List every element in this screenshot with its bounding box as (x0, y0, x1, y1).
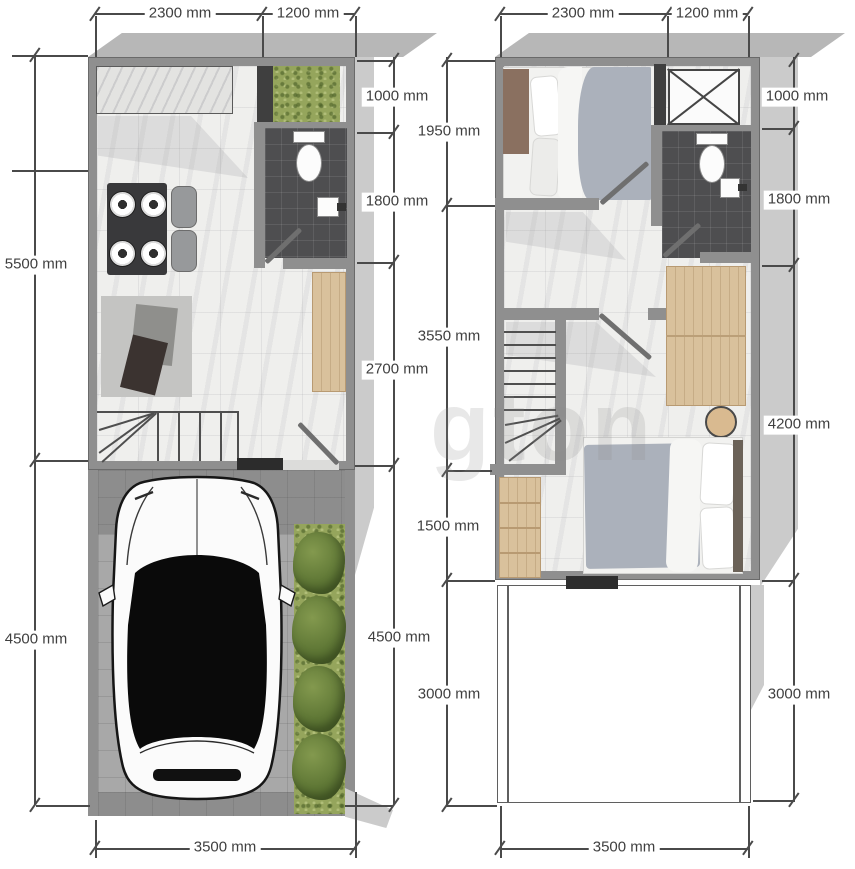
dim-label-plan1-width-a: 2300 mm (145, 5, 216, 24)
dim-ext (446, 60, 495, 62)
dim-ext (748, 16, 750, 57)
kitchen-counter (96, 66, 233, 114)
plate (140, 240, 167, 267)
outline-right-shadow (751, 585, 764, 710)
plan2-wall-top-3d-band (495, 33, 845, 57)
dim-line-left (34, 55, 36, 805)
dim-label-plan1-width-b: 1200 mm (273, 5, 344, 24)
dim-label-mid-2700: 2700 mm (362, 361, 433, 380)
dim-ext (762, 580, 793, 582)
sink1-faucet (337, 203, 346, 211)
toilet1-tank (293, 131, 325, 143)
entry-door-gap (257, 66, 273, 123)
stairs2-tread (504, 344, 556, 346)
wardrobe-divider (499, 502, 541, 504)
car-top-view (95, 473, 299, 803)
shaft-door-gap (654, 64, 666, 126)
dim-label-right-3000: 3000 mm (764, 686, 835, 705)
stairs1-right-edge (237, 411, 239, 461)
dim-ext (12, 55, 88, 57)
bedroom2-entry-wall (497, 308, 599, 320)
dim-label-plan2-width-b: 1200 mm (672, 5, 743, 24)
plate (109, 191, 136, 218)
carport-door-gap (283, 460, 339, 470)
carport-corner-shadow (345, 788, 393, 828)
dim-ext (12, 170, 88, 172)
desk-divider-line (666, 335, 746, 337)
dim-ext (446, 470, 492, 472)
bed2-headboard (733, 440, 743, 572)
outline-inner-line (507, 585, 509, 803)
dim-label-plan1-depth-a: 5500 mm (1, 256, 72, 275)
inner-court-grass (273, 66, 340, 123)
sink2 (720, 178, 740, 198)
carport-right-wall (345, 470, 355, 816)
dim-label-right-1000: 1000 mm (762, 88, 833, 107)
toilet1-bowl (296, 144, 322, 182)
stairs1-tread (220, 412, 222, 461)
dim-label-mid-4500: 4500 mm (364, 629, 435, 648)
dim-label-plan2-bottom: 3500 mm (589, 839, 660, 858)
stairs2-bottom-wall (490, 464, 566, 475)
dim-ext (500, 16, 502, 57)
bench-cabinet (312, 272, 346, 392)
toilet2-tank (696, 133, 728, 145)
dim-ext (357, 262, 393, 264)
dim-ext (446, 205, 495, 207)
stairs1-tread (157, 412, 159, 461)
stairs2-right-wall (555, 308, 566, 475)
shrub (292, 734, 346, 800)
dim-line-mid-a (393, 57, 395, 805)
stairs1-top-edge (97, 411, 237, 413)
bed2-sheet-fold (666, 438, 703, 572)
wardrobe-divider (499, 552, 541, 554)
dim-ext (762, 265, 793, 267)
bed1-duvet (578, 67, 651, 200)
dim-ext (357, 60, 393, 62)
dim-label-mid-1500: 1500 mm (413, 518, 484, 537)
sink1 (317, 197, 339, 217)
lower-level-outline (497, 585, 751, 803)
dim-ext (95, 16, 97, 57)
dim-ext (345, 805, 393, 807)
dim-label-mid-3000: 3000 mm (414, 686, 485, 705)
shrub (293, 666, 345, 732)
dim-label-plan1-bottom: 3500 mm (190, 839, 261, 858)
bed1-pillow (529, 137, 561, 197)
bathroom1-left-wall (254, 122, 265, 268)
shrub (293, 532, 345, 594)
dim-ext (36, 805, 90, 807)
dim-label-mid-3550: 3550 mm (414, 328, 485, 347)
dim-label-plan1-depth-b: 4500 mm (1, 631, 72, 650)
doormat (566, 576, 618, 589)
dim-ext (446, 805, 497, 807)
floor-plan-drawing: gton 2300 mm 1200 mm 2300 mm 1200 mm 550… (0, 0, 855, 869)
dim-label-right-4200: 4200 mm (764, 416, 835, 435)
stairs2-tread (504, 370, 556, 372)
bedroom1-partition-wall (495, 198, 599, 210)
stairs2-tread (504, 331, 556, 333)
plate (109, 240, 136, 267)
dim-ext (262, 16, 264, 57)
bathroom2-bottom-wall (700, 252, 751, 263)
dining-chair (171, 230, 197, 272)
dining-chair (171, 186, 197, 228)
dim-ext (762, 128, 793, 130)
dim-ext (355, 465, 393, 467)
outline-inner-line (739, 585, 741, 803)
dim-ext (500, 806, 502, 858)
sink2-faucet (738, 184, 747, 191)
bathroom1-bottom-wall (283, 258, 347, 269)
dim-ext (446, 580, 495, 582)
round-stool (705, 406, 737, 438)
dim-ext (355, 16, 357, 57)
bathroom2-left-wall (651, 125, 662, 226)
plan1-right-shadow (355, 57, 374, 575)
car-rear-band (153, 769, 241, 781)
wardrobe-divider (499, 527, 541, 529)
dim-label-mid-1950: 1950 mm (414, 123, 485, 142)
stairs1-tread (178, 412, 180, 461)
shrub (292, 596, 346, 664)
stairs2-tread (504, 383, 556, 385)
stairs1-tread (199, 412, 201, 461)
dim-ext (753, 800, 793, 802)
dim-label-mid-1800: 1800 mm (362, 193, 433, 212)
stairs2-tread (504, 409, 556, 411)
dim-ext (95, 820, 97, 858)
dim-ext (36, 460, 88, 462)
dim-label-mid-1000: 1000 mm (362, 88, 433, 107)
dim-ext (748, 806, 750, 858)
bed2-pillow (699, 506, 736, 570)
plate (140, 191, 167, 218)
dim-ext (667, 16, 669, 57)
car-glass-roof (127, 555, 267, 749)
stairs2-tread (504, 357, 556, 359)
dim-label-plan2-width-a: 2300 mm (548, 5, 619, 24)
dim-ext (357, 132, 393, 134)
bed1-headboard (503, 69, 529, 154)
dim-label-right-1800: 1800 mm (764, 191, 835, 210)
bed2-pillow (699, 442, 736, 506)
stairs2-tread (504, 396, 556, 398)
